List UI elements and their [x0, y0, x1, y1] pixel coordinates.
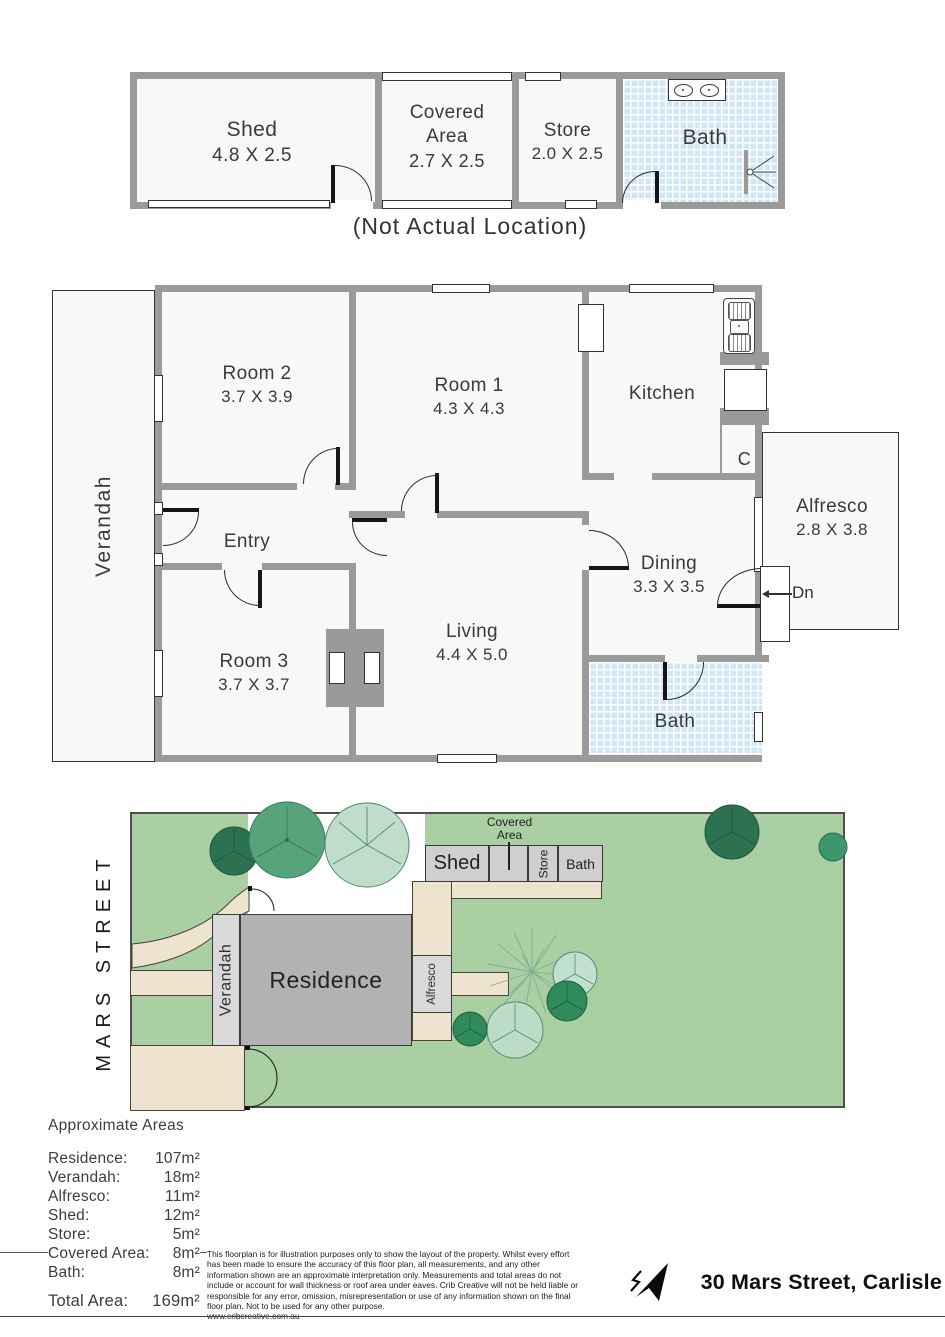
room-name-line2: Area — [382, 125, 512, 149]
down-arrow-head — [762, 590, 769, 598]
basin — [674, 84, 693, 97]
site-shed-label: Shed — [434, 852, 481, 875]
wall — [652, 473, 769, 480]
room-dims: 4.3 X 4.3 — [389, 398, 549, 420]
room-name: Store — [519, 119, 616, 143]
wall — [262, 563, 356, 570]
area-row: Alfresco: 11m² — [48, 1188, 200, 1206]
area-value: 8m² — [173, 1264, 200, 1282]
area-label: Verandah: — [48, 1169, 120, 1187]
room-dining: Dining 3.3 X 3.5 — [589, 552, 749, 598]
verandah: Verandah — [52, 290, 155, 762]
gate-arc — [248, 1078, 277, 1107]
sink-bowl — [730, 320, 749, 334]
room-room2: Room 2 3.7 X 3.9 — [177, 362, 337, 408]
kitchen-sink — [723, 298, 755, 354]
area-label: Shed: — [48, 1207, 90, 1225]
covered-area-pointer — [508, 842, 510, 870]
total-area-value: 169m² — [152, 1292, 200, 1311]
room-room3: Room 3 3.7 X 3.7 — [174, 650, 334, 696]
window — [525, 72, 561, 81]
door-jamb — [154, 502, 163, 515]
site-alfresco-label: Alfresco — [426, 963, 438, 1005]
room-dims: 3.7 X 3.9 — [177, 386, 337, 408]
disclaimer-body: This floorplan is for illustration purpo… — [207, 1249, 578, 1311]
door-arc — [401, 475, 437, 511]
room-bath-outbuilding: Bath — [665, 125, 745, 152]
area-row: Verandah: 18m² — [48, 1169, 200, 1187]
wall — [616, 79, 623, 202]
gate-arc — [252, 889, 274, 911]
door-opening — [331, 200, 373, 209]
area-row: Store: 5m² — [48, 1226, 200, 1244]
area-label: Covered Area: — [48, 1245, 150, 1263]
room-kitchen: Kitchen — [582, 382, 742, 406]
spray-line — [753, 174, 774, 188]
room-bath-main: Bath — [615, 710, 735, 734]
area-row: Residence: 107m² — [48, 1150, 200, 1168]
area-row: Bath: 8m² — [48, 1264, 200, 1282]
basin-drain — [682, 89, 684, 91]
tree — [547, 981, 587, 1021]
area-value: 107m² — [155, 1150, 200, 1168]
door-arc — [224, 570, 260, 606]
room-dims: 2.7 X 2.5 — [382, 150, 512, 173]
site-alfresco: Alfresco — [412, 955, 452, 1013]
window — [432, 284, 490, 293]
room-name: Room 2 — [177, 362, 337, 386]
wall — [437, 511, 589, 518]
window — [154, 375, 163, 422]
area-row: Covered Area: 8m² — [48, 1245, 200, 1263]
wall — [512, 79, 519, 202]
gate-arc — [248, 1049, 277, 1078]
area-label: Alfresco: — [48, 1188, 110, 1206]
room-dims: 4.4 X 5.0 — [392, 644, 552, 666]
footer-rule — [0, 1316, 945, 1317]
tree — [705, 805, 759, 859]
room-name: Living — [392, 620, 552, 644]
room-shed: Shed 4.8 X 2.5 — [167, 117, 337, 168]
outbuilding-caption: (Not Actual Location) — [280, 213, 660, 240]
site-verandah-label: Verandah — [217, 944, 235, 1017]
label-line: Area — [462, 829, 557, 842]
room-covered-area: Covered Area 2.7 X 2.5 — [382, 101, 512, 173]
window — [154, 650, 163, 697]
room-name: Bath — [665, 125, 745, 152]
area-value: 11m² — [165, 1188, 200, 1206]
sink-drainer — [728, 334, 751, 352]
tree — [487, 1002, 543, 1058]
room-living: Living 4.4 X 5.0 — [392, 620, 552, 666]
wall — [582, 473, 614, 480]
down-arrow-line — [768, 593, 792, 595]
vanity — [668, 79, 726, 101]
tree — [453, 1012, 487, 1046]
wall — [162, 483, 297, 490]
open-edge — [382, 200, 512, 209]
room-dims: 2.0 X 2.5 — [519, 143, 616, 165]
floorplan-page: Shed 4.8 X 2.5 Covered Area 2.7 X 2.5 St… — [0, 0, 945, 1337]
door-arc — [335, 165, 372, 201]
wall — [349, 511, 405, 518]
wall — [375, 79, 382, 202]
down-label: Dn — [792, 583, 814, 603]
area-label: Residence: — [48, 1150, 128, 1168]
window — [565, 200, 597, 209]
sink-drain — [738, 325, 740, 327]
verandah-label: Verandah — [92, 475, 116, 577]
site-plan: Verandah Residence Alfresco Shed Store B… — [130, 812, 845, 1108]
shower-icon — [732, 144, 778, 202]
wall — [697, 655, 769, 662]
site-residence: Residence — [240, 914, 412, 1046]
door-arc — [303, 448, 338, 484]
cupboard-label: C — [722, 448, 767, 471]
room-name: Room 3 — [174, 650, 334, 674]
site-residence-label: Residence — [269, 967, 382, 994]
room-dims: 4.8 X 2.5 — [167, 144, 337, 168]
site-covered-area-label: Covered Area — [462, 816, 557, 842]
site-shed: Shed — [425, 845, 489, 882]
tree — [325, 803, 409, 887]
wall — [582, 511, 589, 525]
room-name: Entry — [187, 530, 307, 554]
room-name: Kitchen — [582, 382, 742, 406]
basin — [700, 84, 719, 97]
areas-title: Approximate Areas — [48, 1117, 184, 1135]
open-edge — [382, 72, 512, 81]
wall — [582, 570, 589, 762]
room-dims: 2.8 X 3.8 — [772, 519, 892, 541]
site-bath: Bath — [558, 845, 603, 882]
window — [437, 754, 497, 763]
room-store: Store 2.0 X 2.5 — [519, 119, 616, 165]
room-dims: 3.3 X 3.5 — [589, 576, 749, 598]
area-row: Shed: 12m² — [48, 1207, 200, 1225]
room-name: Alfresco — [772, 495, 892, 519]
wall — [162, 563, 222, 570]
site-store-label: Store — [536, 849, 550, 878]
roller-door — [148, 200, 330, 208]
tree — [249, 802, 325, 878]
room-name: Shed — [167, 117, 337, 144]
residence-plan: Room 2 3.7 X 3.9 Room 1 4.3 X 4.3 Kitche… — [155, 285, 762, 762]
wall — [349, 292, 356, 490]
room-alfresco: Alfresco 2.8 X 3.8 — [772, 495, 892, 541]
window — [754, 712, 763, 742]
room-name-line1: Covered — [382, 101, 512, 125]
sink-drainer — [728, 302, 751, 320]
wall — [589, 655, 665, 662]
area-value: 5m² — [173, 1226, 200, 1244]
room-entry: Entry — [187, 530, 307, 554]
door-arc — [352, 522, 387, 556]
site-bath-label: Bath — [566, 856, 595, 872]
disclaimer-text: This floorplan is for illustration purpo… — [207, 1249, 579, 1322]
total-area-row: Total Area: 169m² — [48, 1292, 200, 1311]
total-area-label: Total Area: — [48, 1292, 128, 1311]
room-dims: 3.7 X 3.7 — [174, 674, 334, 696]
area-value: 18m² — [164, 1169, 200, 1187]
fireplace — [326, 629, 384, 707]
window — [629, 284, 714, 293]
area-label: Store: — [48, 1226, 91, 1244]
shower-head — [747, 169, 753, 175]
area-value: 12m² — [164, 1207, 200, 1225]
street-label: MARS STREET — [93, 847, 119, 1077]
outbuilding-plan: Shed 4.8 X 2.5 Covered Area 2.7 X 2.5 St… — [130, 72, 785, 209]
room-name: Room 1 — [389, 374, 549, 398]
door-jamb — [154, 553, 163, 566]
area-label: Bath: — [48, 1264, 85, 1282]
gate-jamb — [248, 886, 252, 891]
tree — [819, 833, 847, 861]
site-verandah: Verandah — [212, 914, 240, 1046]
built-in-cupboard — [578, 304, 604, 352]
room-name: Bath — [615, 710, 735, 734]
basin-drain — [708, 89, 710, 91]
fireplace-insert — [364, 652, 380, 684]
wall — [585, 352, 587, 480]
spray-line — [753, 156, 774, 170]
room-name: Dining — [589, 552, 749, 576]
step-box — [760, 566, 790, 642]
property-address: 30 Mars Street, Carlisle — [600, 1270, 942, 1295]
room-room1: Room 1 4.3 X 4.3 — [389, 374, 549, 420]
door-leaf — [655, 171, 659, 203]
site-store: Store — [528, 845, 558, 882]
area-value: 8m² — [173, 1245, 200, 1263]
